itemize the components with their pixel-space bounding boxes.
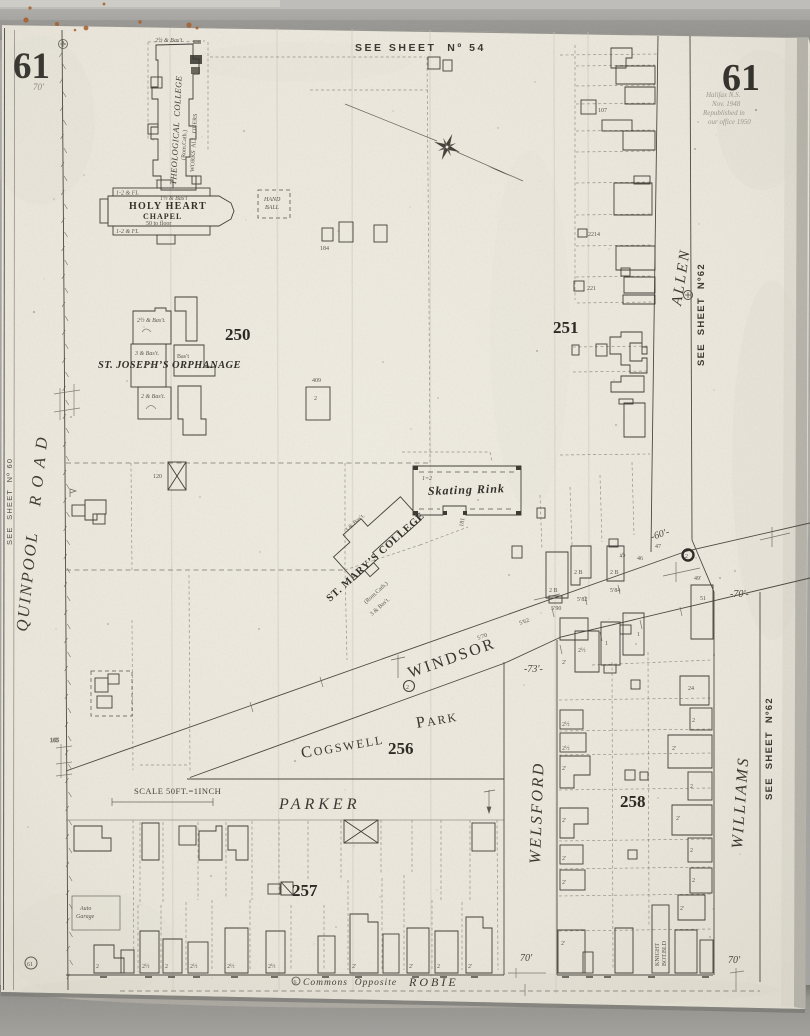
- svg-text:2′: 2′: [676, 816, 681, 822]
- svg-text:70′: 70′: [33, 82, 45, 92]
- svg-text:165: 165: [50, 738, 59, 744]
- svg-text:6: 6: [294, 980, 297, 986]
- svg-text:SEE SHEET Nº 54: SEE SHEET Nº 54: [355, 42, 486, 54]
- svg-text:250: 250: [225, 325, 251, 344]
- svg-text:2′: 2′: [352, 964, 357, 970]
- svg-text:1-2 & FL: 1-2 & FL: [116, 229, 139, 235]
- svg-text:2: 2: [406, 685, 409, 691]
- svg-text:-73′-: -73′-: [524, 664, 543, 675]
- svg-text:2: 2: [96, 964, 99, 970]
- svg-text:120: 120: [153, 474, 162, 480]
- svg-text:SEE SHEET Nº62: SEE SHEET Nº62: [764, 697, 775, 800]
- svg-text:1: 1: [605, 641, 608, 647]
- svg-text:2½ & Bas′t.: 2½ & Bas′t.: [137, 317, 166, 324]
- svg-text:1=2: 1=2: [422, 476, 432, 482]
- svg-text:5′90: 5′90: [551, 606, 561, 612]
- svg-text:2′: 2′: [409, 964, 414, 970]
- svg-text:61: 61: [27, 962, 33, 968]
- svg-text:2½: 2½: [190, 963, 198, 970]
- svg-text:51: 51: [700, 596, 706, 602]
- svg-text:BOT.BLD: BOT.BLD: [662, 940, 668, 966]
- svg-text:SEE SHEET Nº 60: SEE SHEET Nº 60: [5, 458, 14, 545]
- svg-text:258: 258: [620, 792, 646, 811]
- svg-text:PARKER: PARKER: [278, 796, 360, 813]
- svg-text:256: 256: [388, 739, 414, 758]
- svg-text:2′: 2′: [468, 964, 473, 970]
- svg-text:2 & Bas′t.: 2 & Bas′t.: [141, 394, 165, 400]
- svg-text:2½: 2½: [562, 721, 570, 728]
- svg-text:2 B: 2 B: [549, 588, 558, 594]
- svg-text:2′: 2′: [562, 766, 567, 772]
- svg-text:2: 2: [437, 964, 440, 970]
- svg-text:WELSFORD: WELSFORD: [527, 761, 548, 864]
- svg-text:2: 2: [314, 396, 317, 402]
- svg-text:2′: 2′: [562, 660, 567, 666]
- svg-text:47: 47: [655, 544, 661, 550]
- svg-text:2: 2: [692, 878, 695, 884]
- svg-text:2: 2: [692, 718, 695, 724]
- svg-text:2½: 2½: [578, 647, 586, 654]
- svg-text:2 B: 2 B: [610, 570, 619, 576]
- svg-text:Republished in: Republished in: [702, 109, 745, 117]
- svg-text:257: 257: [292, 881, 318, 900]
- svg-text:3 & Bas′t.: 3 & Bas′t.: [134, 351, 159, 357]
- svg-text:Halifax N.S.: Halifax N.S.: [705, 91, 741, 99]
- svg-text:BALL: BALL: [265, 205, 280, 211]
- svg-text:HOLY HEART: HOLY HEART: [129, 201, 207, 212]
- svg-text:Commons Opposite: Commons Opposite: [303, 978, 397, 988]
- svg-text:SEE SHEET Nº62: SEE SHEET Nº62: [696, 263, 707, 366]
- svg-text:2′: 2′: [561, 941, 566, 947]
- svg-text:Bas′t: Bas′t: [177, 354, 189, 360]
- svg-text:5′82: 5′82: [577, 597, 587, 603]
- svg-text:184: 184: [320, 246, 329, 252]
- svg-text:1-2 & FL: 1-2 & FL: [116, 191, 139, 197]
- svg-text:70′: 70′: [520, 953, 533, 964]
- svg-text:KNIGHT: KNIGHT: [655, 943, 661, 966]
- svg-text:SCALE 50FT.=1INCH: SCALE 50FT.=1INCH: [134, 786, 221, 796]
- svg-text:2½: 2½: [268, 963, 276, 970]
- svg-text:221: 221: [587, 286, 596, 292]
- svg-text:our office 1950: our office 1950: [708, 118, 751, 126]
- svg-text:61: 61: [13, 46, 50, 87]
- svg-text:46: 46: [637, 556, 643, 562]
- svg-text:251: 251: [553, 318, 579, 337]
- svg-text:2½: 2½: [562, 745, 570, 752]
- svg-text:50 to floor: 50 to floor: [146, 220, 171, 227]
- svg-text:2 B: 2 B: [574, 570, 583, 576]
- svg-text:2: 2: [165, 964, 168, 970]
- svg-text:2′: 2′: [680, 906, 685, 912]
- svg-text:2½ & Bas′t: 2½ & Bas′t: [155, 37, 182, 44]
- svg-text:Skating Rink: Skating Rink: [428, 481, 505, 498]
- svg-text:107: 107: [598, 108, 607, 114]
- svg-text:2: 2: [685, 554, 688, 560]
- svg-text:Nov. 1948: Nov. 1948: [711, 100, 741, 108]
- svg-text:Garage: Garage: [76, 914, 95, 920]
- svg-text:1: 1: [637, 632, 640, 638]
- svg-text:CHAPEL: CHAPEL: [143, 212, 182, 221]
- svg-text:2′: 2′: [562, 818, 567, 824]
- svg-text:2½: 2½: [142, 963, 150, 970]
- svg-text:70′: 70′: [728, 955, 741, 966]
- svg-text:2′: 2′: [672, 746, 677, 752]
- svg-text:2½: 2½: [227, 963, 235, 970]
- svg-text:HAND: HAND: [263, 197, 281, 203]
- svg-text:2′: 2′: [562, 880, 567, 886]
- svg-text:2214: 2214: [588, 232, 600, 238]
- svg-text:-70′-: -70′-: [730, 589, 749, 600]
- svg-text:49′: 49′: [694, 576, 702, 582]
- svg-text:409: 409: [312, 378, 321, 384]
- svg-text:2: 2: [690, 784, 693, 790]
- svg-text:ST. JOSEPH’S ORPHANAGE: ST. JOSEPH’S ORPHANAGE: [98, 360, 241, 371]
- svg-text:5′84: 5′84: [610, 588, 620, 594]
- svg-text:Auto: Auto: [79, 906, 91, 912]
- svg-text:2′: 2′: [562, 856, 567, 862]
- svg-text:24: 24: [688, 686, 694, 692]
- svg-text:2: 2: [690, 848, 693, 854]
